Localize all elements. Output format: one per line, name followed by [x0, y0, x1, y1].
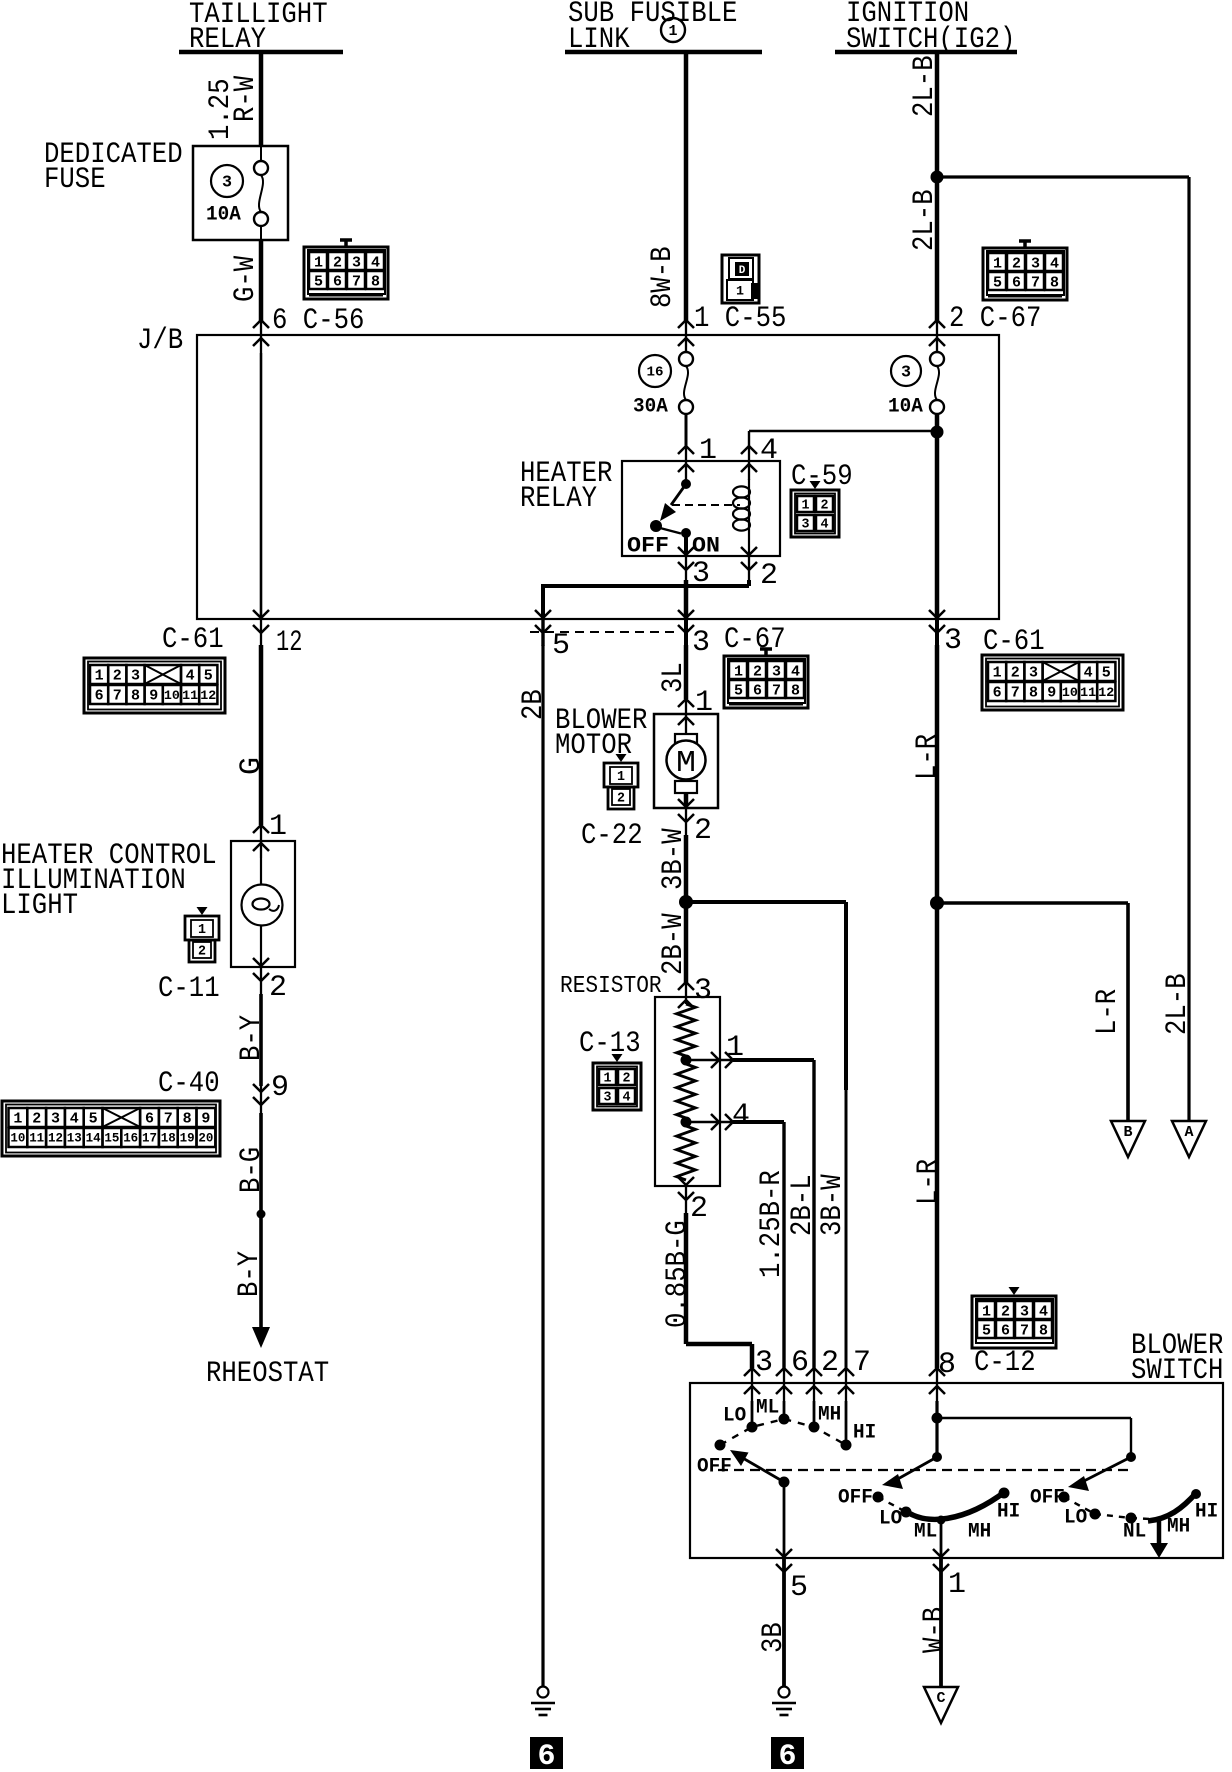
svg-text:ML: ML — [756, 1396, 779, 1419]
svg-text:L-R: L-R — [912, 1159, 946, 1205]
svg-text:MH: MH — [968, 1520, 991, 1543]
svg-text:HI: HI — [1195, 1500, 1218, 1523]
svg-text:ON: ON — [692, 534, 720, 559]
svg-text:12: 12 — [1098, 685, 1114, 700]
svg-text:8: 8 — [1039, 1323, 1048, 1340]
svg-text:4: 4 — [732, 1099, 750, 1133]
svg-text:3: 3 — [1029, 665, 1038, 682]
svg-text:5: 5 — [1102, 665, 1111, 682]
svg-text:1: 1 — [699, 434, 717, 468]
svg-text:30A: 30A — [633, 395, 668, 418]
svg-text:4: 4 — [371, 255, 380, 272]
svg-text:2: 2 — [32, 1111, 41, 1128]
svg-text:1: 1 — [726, 1031, 744, 1065]
svg-text:2B-L: 2B-L — [786, 1174, 820, 1236]
svg-text:17: 17 — [142, 1132, 157, 1146]
svg-text:0.85B-G: 0.85B-G — [661, 1220, 695, 1328]
svg-text:2L-B: 2L-B — [1161, 973, 1195, 1035]
svg-text:2: 2 — [1012, 256, 1021, 273]
svg-text:G: G — [235, 757, 269, 775]
svg-text:1: 1 — [314, 255, 323, 272]
svg-text:10: 10 — [164, 688, 180, 703]
svg-text:A: A — [1184, 1124, 1193, 1141]
svg-text:D: D — [739, 265, 746, 277]
svg-text:B-Y: B-Y — [233, 1251, 267, 1297]
svg-text:7: 7 — [1031, 275, 1040, 292]
svg-text:4: 4 — [186, 668, 195, 685]
svg-text:5: 5 — [314, 274, 323, 291]
svg-text:11: 11 — [182, 688, 198, 703]
svg-text:1: 1 — [13, 1111, 22, 1128]
svg-text:4: 4 — [623, 1090, 631, 1106]
svg-text:1: 1 — [198, 922, 206, 938]
svg-text:MH: MH — [818, 1403, 841, 1426]
svg-text:6: 6 — [753, 683, 762, 700]
svg-text:2B: 2B — [517, 689, 551, 720]
svg-text:ML: ML — [914, 1520, 937, 1543]
svg-text:LIGHT: LIGHT — [1, 889, 78, 923]
svg-text:10A: 10A — [888, 395, 923, 418]
svg-text:1: 1 — [993, 256, 1002, 273]
svg-text:RHEOSTAT: RHEOSTAT — [206, 1357, 329, 1391]
svg-text:1: 1 — [269, 810, 287, 844]
svg-text:5: 5 — [89, 1111, 98, 1128]
svg-text:C-61: C-61 — [162, 623, 224, 657]
svg-text:7: 7 — [164, 1111, 173, 1128]
svg-text:3: 3 — [352, 255, 361, 272]
svg-text:2L-B: 2L-B — [908, 189, 942, 251]
svg-text:2: 2 — [821, 498, 829, 514]
svg-text:18: 18 — [161, 1132, 176, 1146]
svg-text:2: 2 — [113, 668, 122, 685]
svg-text:20: 20 — [198, 1132, 213, 1146]
svg-text:RESISTOR: RESISTOR — [560, 973, 662, 1000]
svg-text:RELAY: RELAY — [520, 482, 597, 516]
svg-text:3: 3 — [901, 364, 911, 383]
svg-text:6: 6 — [145, 1111, 154, 1128]
svg-text:10A: 10A — [206, 203, 241, 226]
svg-text:5: 5 — [790, 1571, 808, 1605]
svg-text:2L-B: 2L-B — [908, 55, 942, 117]
svg-text:B-G: B-G — [235, 1147, 269, 1193]
svg-text:OFF: OFF — [697, 1455, 732, 1478]
svg-text:J/B: J/B — [137, 324, 183, 358]
svg-text:4: 4 — [1039, 1304, 1048, 1321]
svg-text:2: 2 — [198, 944, 206, 960]
svg-text:B-Y: B-Y — [235, 1015, 269, 1061]
svg-text:1: 1 — [802, 498, 810, 514]
svg-text:3: 3 — [944, 624, 962, 658]
svg-text:8: 8 — [131, 688, 140, 705]
svg-text:1: 1 — [604, 1071, 612, 1087]
svg-text:5: 5 — [552, 629, 570, 663]
svg-text:2: 2 — [821, 1346, 839, 1380]
svg-text:12: 12 — [276, 626, 302, 660]
svg-text:2: 2 — [1001, 1304, 1010, 1321]
svg-text:6 C-56: 6 C-56 — [272, 304, 364, 338]
svg-text:3L: 3L — [657, 662, 691, 693]
svg-text:NL: NL — [1123, 1520, 1146, 1543]
svg-text:3: 3 — [772, 664, 781, 681]
svg-text:M: M — [676, 746, 696, 781]
svg-text:2: 2 — [694, 814, 712, 848]
svg-text:L-R: L-R — [911, 734, 945, 780]
svg-text:2: 2 — [269, 971, 287, 1005]
svg-text:L-R: L-R — [1091, 989, 1125, 1035]
svg-text:LO: LO — [1064, 1506, 1087, 1529]
svg-text:3: 3 — [802, 517, 810, 533]
svg-text:4: 4 — [70, 1111, 79, 1128]
svg-text:1: 1 — [734, 664, 743, 681]
svg-text:1: 1 — [669, 23, 678, 40]
svg-text:3: 3 — [1020, 1304, 1029, 1321]
svg-text:6: 6 — [1012, 275, 1021, 292]
svg-text:6: 6 — [537, 1740, 555, 1772]
svg-text:3: 3 — [1031, 256, 1040, 273]
svg-text:9: 9 — [1047, 685, 1056, 702]
svg-text:6: 6 — [778, 1740, 796, 1772]
svg-text:2 C-67: 2 C-67 — [949, 302, 1041, 336]
svg-text:4: 4 — [1084, 665, 1093, 682]
svg-text:19: 19 — [180, 1132, 195, 1146]
svg-text:11: 11 — [1080, 685, 1096, 700]
svg-text:3: 3 — [604, 1090, 612, 1106]
svg-text:7: 7 — [1020, 1323, 1029, 1340]
svg-text:4: 4 — [760, 434, 778, 468]
svg-text:1: 1 — [993, 665, 1002, 682]
svg-text:9: 9 — [271, 1071, 289, 1105]
svg-text:16: 16 — [123, 1132, 138, 1146]
svg-text:12: 12 — [48, 1132, 63, 1146]
svg-text:6: 6 — [333, 274, 342, 291]
svg-text:1: 1 — [948, 1568, 966, 1602]
svg-text:HI: HI — [853, 1421, 876, 1444]
svg-text:9: 9 — [149, 688, 158, 705]
svg-text:6: 6 — [993, 685, 1002, 702]
svg-text:6: 6 — [95, 688, 104, 705]
svg-text:6: 6 — [1001, 1323, 1010, 1340]
svg-text:2: 2 — [760, 559, 778, 593]
svg-text:C-67: C-67 — [724, 623, 786, 657]
svg-text:10: 10 — [10, 1132, 25, 1146]
svg-text:4: 4 — [791, 664, 800, 681]
svg-text:MH: MH — [1167, 1515, 1190, 1538]
svg-text:2B-W: 2B-W — [657, 913, 691, 975]
svg-text:3: 3 — [222, 174, 232, 193]
svg-text:3: 3 — [755, 1346, 773, 1380]
svg-text:8: 8 — [791, 683, 800, 700]
svg-text:2: 2 — [1011, 665, 1020, 682]
svg-text:2: 2 — [617, 791, 625, 807]
svg-text:2: 2 — [753, 664, 762, 681]
svg-text:8W-B: 8W-B — [646, 246, 680, 308]
svg-text:4: 4 — [1050, 256, 1059, 273]
svg-text:1: 1 — [95, 668, 104, 685]
svg-text:8: 8 — [371, 274, 380, 291]
svg-text:7: 7 — [113, 688, 122, 705]
svg-text:OFF: OFF — [838, 1486, 873, 1509]
svg-text:LO: LO — [723, 1404, 746, 1427]
svg-text:5: 5 — [993, 275, 1002, 292]
svg-text:12: 12 — [200, 688, 216, 703]
svg-text:3: 3 — [694, 974, 712, 1008]
svg-text:1: 1 — [736, 283, 744, 298]
svg-text:B: B — [1123, 1124, 1132, 1141]
svg-text:15: 15 — [104, 1132, 119, 1146]
svg-text:3B-W: 3B-W — [657, 828, 691, 890]
svg-text:LO: LO — [879, 1507, 902, 1530]
svg-text:3B: 3B — [757, 1622, 791, 1653]
svg-text:14: 14 — [86, 1132, 101, 1146]
svg-text:16: 16 — [647, 365, 664, 381]
svg-text:C-22: C-22 — [581, 819, 643, 853]
svg-text:OFF: OFF — [627, 534, 669, 559]
svg-text:C-13: C-13 — [579, 1027, 641, 1061]
svg-text:G-W: G-W — [229, 256, 263, 302]
svg-text:3B-W: 3B-W — [816, 1174, 850, 1236]
svg-text:W-B: W-B — [918, 1607, 952, 1653]
svg-text:7: 7 — [772, 683, 781, 700]
svg-text:8: 8 — [938, 1348, 956, 1382]
svg-text:5: 5 — [734, 683, 743, 700]
svg-text:C-40: C-40 — [158, 1067, 220, 1101]
svg-text:5: 5 — [982, 1323, 991, 1340]
svg-text:9: 9 — [201, 1111, 210, 1128]
svg-text:2: 2 — [623, 1071, 631, 1087]
svg-text:1 C-55: 1 C-55 — [694, 302, 786, 336]
svg-text:4: 4 — [821, 517, 829, 533]
svg-text:2: 2 — [333, 255, 342, 272]
svg-text:8: 8 — [1050, 275, 1059, 292]
svg-text:R-W: R-W — [229, 76, 263, 122]
svg-text:3: 3 — [692, 626, 710, 660]
svg-text:7: 7 — [1011, 685, 1020, 702]
svg-text:HI: HI — [997, 1500, 1020, 1523]
svg-text:3: 3 — [131, 668, 140, 685]
svg-text:1: 1 — [617, 769, 625, 785]
svg-text:C-12: C-12 — [974, 1346, 1036, 1380]
svg-text:C: C — [936, 1690, 945, 1707]
svg-text:OFF: OFF — [1030, 1486, 1065, 1509]
svg-text:C-11: C-11 — [158, 972, 220, 1006]
svg-text:FUSE: FUSE — [44, 163, 106, 197]
svg-text:10: 10 — [1062, 685, 1078, 700]
svg-text:1: 1 — [982, 1304, 991, 1321]
svg-text:3: 3 — [51, 1111, 60, 1128]
svg-text:11: 11 — [29, 1132, 44, 1146]
svg-text:8: 8 — [1029, 685, 1038, 702]
svg-text:1.25B-R: 1.25B-R — [755, 1170, 789, 1278]
svg-text:7: 7 — [352, 274, 361, 291]
svg-text:5: 5 — [204, 668, 213, 685]
svg-text:13: 13 — [67, 1132, 82, 1146]
svg-text:7: 7 — [853, 1346, 871, 1380]
svg-text:8: 8 — [183, 1111, 192, 1128]
